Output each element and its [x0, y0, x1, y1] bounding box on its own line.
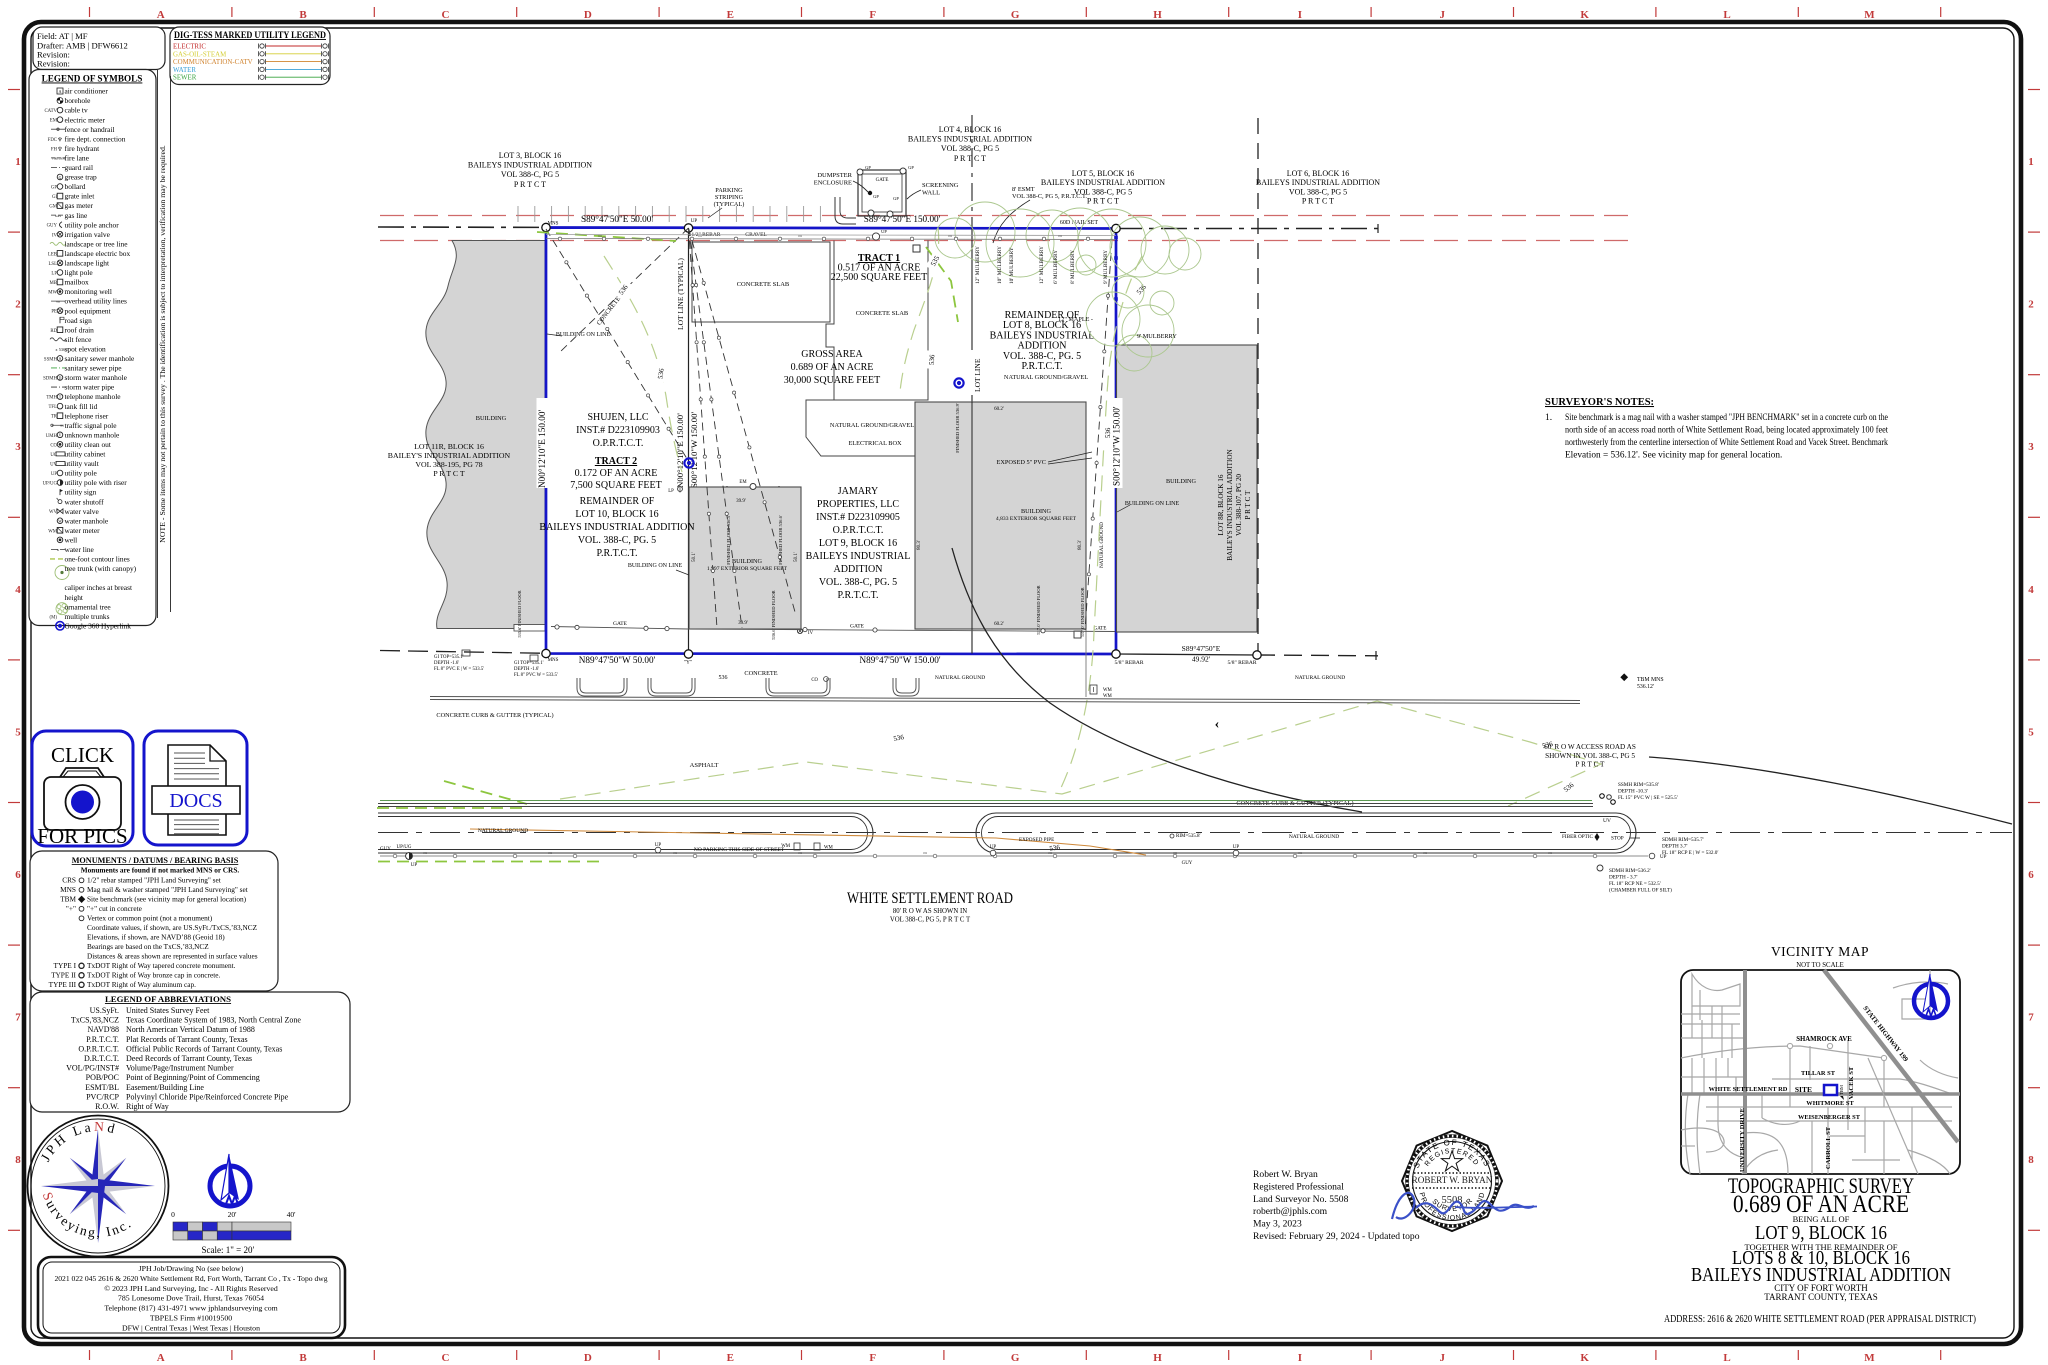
svg-text:TBM: TBM: [1839, 1085, 1844, 1095]
svg-text:GP: GP: [908, 165, 914, 170]
svg-text:2021 022 045 2616 & 2620 White: 2021 022 045 2616 & 2620 White Settlemen…: [54, 1274, 327, 1283]
svg-text:ou: ou: [698, 234, 702, 238]
svg-text:Revised: February 29, 2024 - U: Revised: February 29, 2024 - Updated top…: [1253, 1231, 1420, 1242]
svg-text:sanitary sewer manhole: sanitary sewer manhole: [65, 354, 135, 363]
svg-text:utility pole with riser: utility pole with riser: [65, 478, 128, 487]
svg-text:80' R O W AS SHOWN IN: 80' R O W AS SHOWN IN: [893, 908, 967, 915]
svg-text:gas meter: gas meter: [65, 201, 94, 210]
svg-text:4: 4: [2028, 584, 2034, 596]
svg-text:ou: ou: [798, 234, 802, 238]
svg-text:J: J: [1440, 1352, 1446, 1364]
svg-text:VOL/PG/INST#: VOL/PG/INST#: [66, 1064, 119, 1073]
svg-text:LOT 3, BLOCK 16: LOT 3, BLOCK 16: [499, 151, 562, 160]
svg-text:CONCRETE SLAB: CONCRETE SLAB: [856, 310, 909, 317]
svg-text:IV: IV: [52, 233, 58, 238]
svg-text:TBM: TBM: [60, 895, 76, 904]
svg-text:P.R.T.C.T.: P.R.T.C.T.: [1021, 361, 1062, 372]
svg-text:DEPTH -1.6': DEPTH -1.6': [434, 661, 459, 666]
svg-text:VOL 388-C, PG 5: VOL 388-C, PG 5: [941, 144, 999, 153]
svg-text:UP: UP: [691, 219, 698, 224]
svg-text:F: F: [869, 9, 876, 21]
svg-text:UP: UP: [51, 472, 57, 477]
svg-text:water shutoff: water shutoff: [65, 497, 105, 506]
svg-text:+: +: [56, 497, 58, 501]
svg-text:GAS: GAS: [55, 214, 61, 218]
svg-text:GUY: GUY: [380, 847, 391, 852]
svg-text:LOT LINE: LOT LINE: [973, 358, 982, 392]
svg-text:N89°47'50"W 150.00': N89°47'50"W 150.00': [859, 655, 940, 665]
svg-text:SDMH RIM=535.7': SDMH RIM=535.7': [1662, 837, 1704, 843]
svg-text:CARROLL ST: CARROLL ST: [1825, 1126, 1832, 1169]
svg-text:ou: ou: [923, 851, 927, 855]
svg-text:49.92': 49.92': [1192, 655, 1211, 664]
svg-text:B: B: [299, 9, 307, 21]
svg-text:storm water manhole: storm water manhole: [65, 373, 128, 382]
svg-text:L: L: [1723, 9, 1730, 21]
svg-text:Mag nail & washer stamped "JPH: Mag nail & washer stamped "JPH Land Surv…: [87, 885, 248, 894]
svg-text:FL 15" PVC W | SE = 525.5′: FL 15" PVC W | SE = 525.5′: [1618, 795, 1678, 801]
svg-text:"+" cut in concrete: "+" cut in concrete: [87, 904, 142, 913]
svg-text:9' MULBERRY: 9' MULBERRY: [1137, 333, 1177, 340]
svg-text:DUMPSTER: DUMPSTER: [817, 172, 852, 179]
svg-text:FIBER OPTIC: FIBER OPTIC: [1562, 834, 1594, 840]
svg-text:12" MULBERRY: 12" MULBERRY: [1039, 246, 1045, 284]
svg-text:10' MULBERRY: 10' MULBERRY: [1009, 247, 1015, 284]
svg-text:utility vault: utility vault: [65, 459, 100, 468]
svg-text:80.3': 80.3': [1078, 540, 1083, 550]
svg-text:1/2" rebar stamped "JPH Land S: 1/2" rebar stamped "JPH Land Surveying" …: [87, 876, 221, 885]
svg-text:LOT 9, BLOCK 16: LOT 9, BLOCK 16: [1755, 1223, 1887, 1244]
svg-text:L: L: [1723, 1352, 1730, 1364]
svg-text:GM: GM: [49, 205, 57, 210]
svg-text:PROPERTIES, LLC: PROPERTIES, LLC: [817, 499, 900, 510]
svg-text:utility pole: utility pole: [65, 469, 98, 478]
svg-text:G: G: [59, 176, 62, 180]
svg-text:UP: UP: [881, 229, 887, 234]
svg-text:BAILEYS INDUSTRIAL ADDITION: BAILEYS INDUSTRIAL ADDITION: [1041, 178, 1165, 187]
svg-text:silt fence: silt fence: [65, 335, 93, 344]
svg-text:BAILEYS INDUSTRIAL ADDITION: BAILEYS INDUSTRIAL ADDITION: [539, 522, 694, 533]
svg-text:utility pole anchor: utility pole anchor: [65, 220, 120, 229]
svg-text:BUILDING ON LINE: BUILDING ON LINE: [556, 332, 611, 338]
svg-text:ELECTRIC: ELECTRIC: [173, 44, 206, 51]
svg-text:P.R.T.C.T.: P.R.T.C.T.: [596, 548, 637, 559]
svg-text:VOL. 388-C, PG. 5: VOL. 388-C, PG. 5: [578, 535, 656, 546]
svg-text:NATURAL GROUND: NATURAL GROUND: [478, 828, 528, 834]
svg-text:9' MULBERRY: 9' MULBERRY: [1103, 250, 1109, 284]
svg-text:WM: WM: [48, 529, 58, 534]
svg-text:J: J: [1440, 9, 1446, 21]
svg-text:8: 8: [2028, 1154, 2034, 1166]
svg-text:H: H: [1153, 1352, 1162, 1364]
svg-text:REMAINDER OF: REMAINDER OF: [580, 496, 655, 507]
svg-text:3: 3: [2028, 441, 2034, 453]
svg-text:GI TOP=535.1': GI TOP=535.1': [514, 661, 544, 666]
svg-text:WV: WV: [49, 510, 58, 515]
svg-text:telephone riser: telephone riser: [65, 411, 109, 420]
svg-text:1,997 EXTERIOR SQUARE FEET: 1,997 EXTERIOR SQUARE FEET: [707, 566, 788, 572]
svg-text:‹: ‹: [1215, 717, 1220, 732]
svg-text:G: G: [1011, 1352, 1020, 1364]
svg-text:LOT 9, BLOCK 16: LOT 9, BLOCK 16: [819, 538, 897, 549]
svg-text:D: D: [584, 1352, 592, 1364]
svg-text:536: 536: [719, 675, 728, 681]
svg-text:GP: GP: [865, 165, 871, 170]
svg-text:PARKING: PARKING: [715, 187, 743, 194]
svg-text:22,500 SQUARE FEET: 22,500 SQUARE FEET: [831, 272, 927, 283]
svg-text:VOL 388-C, PG 5: VOL 388-C, PG 5: [1289, 187, 1347, 196]
svg-text:MW: MW: [48, 291, 57, 296]
svg-text:UP: UP: [411, 863, 418, 868]
svg-text:FL 18" RCP E | W = 532.0′: FL 18" RCP E | W = 532.0′: [1662, 850, 1719, 856]
svg-text:Registered Professional: Registered Professional: [1253, 1181, 1344, 1192]
svg-text:TRACT 2: TRACT 2: [595, 456, 637, 467]
svg-text:M: M: [1864, 9, 1875, 21]
svg-text:sanitary sewer pipe: sanitary sewer pipe: [65, 364, 123, 373]
svg-text:LSL: LSL: [48, 262, 57, 267]
svg-text:GI TOP=535.1': GI TOP=535.1': [434, 655, 464, 660]
svg-text:VOL 388-C, PG 5, P.R.T.C.T.: VOL 388-C, PG 5, P.R.T.C.T.: [1012, 193, 1087, 200]
svg-text:SITE: SITE: [1795, 1085, 1812, 1094]
svg-text:MB: MB: [50, 281, 57, 286]
svg-text:ou: ou: [1058, 234, 1062, 238]
svg-text:LP: LP: [51, 271, 57, 276]
svg-text:BUILDING ON LINE: BUILDING ON LINE: [628, 563, 683, 569]
svg-text:SCREENING: SCREENING: [922, 182, 959, 189]
svg-text:N00°12'10"E 150.00': N00°12'10"E 150.00': [537, 410, 547, 488]
svg-text:GI: GI: [52, 195, 57, 200]
svg-text:NATURAL GROUND: NATURAL GROUND: [935, 675, 985, 681]
svg-text:VICINITY MAP: VICINITY MAP: [1771, 944, 1869, 959]
svg-text:FL 8" PVC W = 533.5': FL 8" PVC W = 533.5': [514, 673, 558, 678]
svg-text:S00°12'10"W 150.00': S00°12'10"W 150.00': [689, 411, 699, 488]
svg-text:electric meter: electric meter: [65, 115, 106, 124]
svg-text:WHITE SETTLEMENT RD: WHITE SETTLEMENT RD: [1709, 1086, 1788, 1093]
svg-text:S00°12'10"W 150.00': S00°12'10"W 150.00': [1112, 406, 1122, 486]
svg-text:caliper inches at breast: caliper inches at breast: [65, 583, 133, 592]
svg-text:LOT 11R, BLOCK 16: LOT 11R, BLOCK 16: [414, 442, 484, 451]
svg-text:BUILDING: BUILDING: [732, 558, 762, 565]
svg-text:5/8" REBAR: 5/8" REBAR: [1228, 660, 1257, 666]
svg-text:8' MULBERRY: 8' MULBERRY: [1070, 250, 1076, 284]
svg-text:S89°47'50"E: S89°47'50"E: [1182, 644, 1221, 653]
svg-text:FL 8" PVC E | W = 533.5': FL 8" PVC E | W = 533.5': [434, 667, 484, 672]
svg-text:H: H: [1153, 9, 1162, 21]
svg-text:ADDITION: ADDITION: [834, 564, 883, 575]
svg-text:P.R.T.C.T.: P.R.T.C.T.: [837, 590, 878, 601]
svg-text:O.P.R.T.C.T.: O.P.R.T.C.T.: [78, 1044, 119, 1053]
svg-text:guard rail: guard rail: [65, 163, 94, 172]
svg-text:cable tv: cable tv: [65, 106, 88, 115]
svg-text:S: S: [59, 357, 61, 361]
svg-text:ou: ou: [1048, 851, 1052, 855]
svg-text:spot elevation: spot elevation: [65, 344, 107, 353]
svg-text:FINISHED FLOOR 536.9': FINISHED FLOOR 536.9': [955, 403, 960, 453]
svg-text:BUILDING: BUILDING: [1166, 478, 1196, 485]
svg-text:39.9': 39.9': [736, 499, 746, 504]
svg-text:0.689 OF AN ACRE: 0.689 OF AN ACRE: [791, 362, 874, 373]
svg-text:WHITE SETTLEMENT ROAD: WHITE SETTLEMENT ROAD: [847, 890, 1013, 907]
svg-text:ou: ou: [798, 851, 802, 855]
svg-text:CO: CO: [811, 678, 818, 683]
svg-text:I: I: [1298, 9, 1302, 21]
svg-text:12" MAPLE -: 12" MAPLE -: [1058, 316, 1093, 323]
svg-text:BAILEYS INDUSTRIAL ADDITION: BAILEYS INDUSTRIAL ADDITION: [1226, 448, 1234, 560]
svg-text:8: 8: [15, 1154, 21, 1166]
svg-text:INST.# D223109903: INST.# D223109903: [576, 425, 660, 436]
svg-text:ou: ou: [56, 300, 60, 304]
svg-text:W: W: [58, 520, 62, 524]
svg-text:CATV: CATV: [44, 109, 57, 114]
svg-text:3: 3: [15, 441, 21, 453]
svg-text:Telephone (817) 431-4971 www j: Telephone (817) 431-4971 www jphlandsurv…: [104, 1304, 277, 1313]
svg-text:WM: WM: [781, 844, 791, 849]
svg-text:6: 6: [2028, 869, 2034, 881]
svg-text:VOL. 388-C, PG. 5: VOL. 388-C, PG. 5: [819, 577, 897, 588]
svg-text:7: 7: [15, 1012, 21, 1024]
svg-text:CONCRETE CURB & GUTTER (TYPICA: CONCRETE CURB & GUTTER (TYPICAL): [436, 712, 553, 719]
svg-text:WATER: WATER: [173, 67, 196, 74]
svg-text:air conditioner: air conditioner: [65, 87, 109, 96]
svg-text:Polyvinyl Chloride Pipe/Reinfo: Polyvinyl Chloride Pipe/Reinforced Concr…: [126, 1092, 289, 1101]
svg-text:LOT 8R, BLOCK 16: LOT 8R, BLOCK 16: [1217, 474, 1225, 535]
svg-text:7,500 SQUARE FEET: 7,500 SQUARE FEET: [570, 480, 661, 491]
svg-text:pool equipment: pool equipment: [65, 306, 112, 315]
svg-text:P R T C T: P R T C T: [1302, 197, 1334, 206]
svg-text:ou: ou: [673, 851, 677, 855]
svg-text:water meter: water meter: [65, 526, 101, 535]
svg-text:(M): (M): [50, 615, 58, 620]
svg-text:Google 360 Hyperlink: Google 360 Hyperlink: [65, 621, 132, 630]
svg-text:Elevation = 536.12'. See vicin: Elevation = 536.12'. See vicinity map fo…: [1565, 450, 1782, 461]
svg-text:A: A: [157, 9, 165, 21]
svg-text:CONCRETE SLAB: CONCRETE SLAB: [737, 281, 790, 288]
svg-text:Distances & areas shown are re: Distances & areas shown are represented …: [87, 952, 258, 961]
svg-text:CLICK: CLICK: [51, 743, 114, 767]
svg-text:GUY: GUY: [1182, 861, 1193, 866]
svg-text:ou: ou: [1298, 851, 1302, 855]
svg-text:fire lane: fire lane: [65, 153, 90, 162]
svg-text:roof drain: roof drain: [65, 325, 95, 334]
svg-text:DFW | Central Texas | West Tex: DFW | Central Texas | West Texas | Houst…: [122, 1323, 260, 1332]
svg-text:8' ESMT: 8' ESMT: [1012, 186, 1035, 193]
svg-text:VOL 388-107, PG 20: VOL 388-107, PG 20: [1235, 474, 1243, 536]
svg-text:© 2023 JPH Land Surveying, Inc: © 2023 JPH Land Surveying, Inc - All Rig…: [104, 1284, 278, 1293]
svg-text:FDC: FDC: [48, 138, 57, 143]
svg-text:ou: ou: [1548, 851, 1552, 855]
svg-text:P.R.T.C.T.: P.R.T.C.T.: [86, 1035, 119, 1044]
svg-text:C: C: [442, 1352, 450, 1364]
svg-text:1: 1: [2028, 156, 2034, 168]
svg-text:FOR PICS: FOR PICS: [37, 824, 127, 848]
svg-text:BAILEYS INDUSTRIAL ADDITION: BAILEYS INDUSTRIAL ADDITION: [1256, 178, 1380, 187]
svg-text:LEB: LEB: [48, 252, 57, 257]
svg-text:NATURAL GROUND: NATURAL GROUND: [1289, 834, 1339, 840]
svg-text:(CHAMBER FULL OF SILT): (CHAMBER FULL OF SILT): [1609, 887, 1672, 894]
svg-text:borehole: borehole: [65, 96, 92, 105]
svg-text:A: A: [157, 1352, 165, 1364]
svg-text:STOP: STOP: [1611, 836, 1624, 842]
svg-text:FL 18" RCP NE = 532.5′: FL 18" RCP NE = 532.5′: [1609, 881, 1661, 887]
svg-text:20': 20': [228, 1210, 238, 1219]
svg-text:♆: ♆: [57, 136, 62, 143]
svg-text:SHAMROCK AVE: SHAMROCK AVE: [1796, 1036, 1852, 1043]
svg-text:O.P.R.T.C.T.: O.P.R.T.C.T.: [593, 438, 644, 449]
svg-text:May 3, 2023: May 3, 2023: [1253, 1219, 1302, 1230]
svg-text:SSMH: SSMH: [44, 357, 58, 362]
svg-text:CONCRETE: CONCRETE: [744, 670, 777, 677]
svg-text:ELECTRICAL BOX: ELECTRICAL BOX: [848, 440, 902, 447]
svg-text:ou: ou: [548, 851, 552, 855]
svg-text:TYPE III: TYPE III: [49, 980, 77, 989]
svg-text:SDMH: SDMH: [43, 377, 57, 382]
svg-text:ASPHALT: ASPHALT: [690, 762, 719, 769]
svg-text:tree trunk (with canopy): tree trunk (with canopy): [65, 564, 137, 573]
svg-text:Site benchmark is a mag nail w: Site benchmark is a mag nail with a wash…: [1565, 413, 1888, 423]
svg-text:39.9': 39.9': [738, 621, 748, 626]
svg-text:MNS: MNS: [548, 222, 559, 227]
svg-text:LP: LP: [668, 489, 674, 494]
svg-text:well: well: [65, 535, 78, 544]
svg-text:Official Public Records of Tar: Official Public Records of Tarrant Count…: [126, 1044, 282, 1053]
svg-text:Plat Records of Tarrant County: Plat Records of Tarrant County, Texas: [126, 1035, 248, 1044]
svg-text:water line: water line: [65, 545, 95, 554]
svg-text:VOL 388-195, PG 78: VOL 388-195, PG 78: [415, 460, 482, 469]
svg-text:V: V: [59, 434, 62, 438]
svg-text:40': 40': [287, 1210, 297, 1219]
svg-text:NATURAL GROUND/GRAVEL: NATURAL GROUND/GRAVEL: [830, 422, 914, 429]
svg-text:SHUJEN, LLC: SHUJEN, LLC: [587, 412, 648, 423]
svg-text:B: B: [299, 1352, 307, 1364]
svg-text:telephone manhole: telephone manhole: [65, 392, 122, 401]
svg-text:Site benchmark (see vicinity m: Site benchmark (see vicinity map for gen…: [87, 895, 247, 904]
svg-text:light pole: light pole: [65, 268, 94, 277]
svg-text:GAS-OIL-STEAM: GAS-OIL-STEAM: [173, 51, 226, 58]
svg-text:UV: UV: [1603, 818, 1611, 824]
svg-text:DEPTH 3.7': DEPTH 3.7': [1662, 844, 1687, 850]
svg-text:6' MULBERRY: 6' MULBERRY: [1053, 250, 1059, 284]
svg-text:VACEK ST: VACEK ST: [1848, 1066, 1855, 1099]
svg-text:D: D: [584, 9, 592, 21]
svg-text:VOL 388-C, PG 5: VOL 388-C, PG 5: [501, 170, 559, 179]
svg-text:DOCS: DOCS: [169, 790, 222, 812]
svg-text:SEWER: SEWER: [173, 75, 197, 82]
svg-text:LOT 6, BLOCK 16: LOT 6, BLOCK 16: [1287, 169, 1350, 178]
svg-text:C: C: [442, 9, 450, 21]
svg-text:BUILDING: BUILDING: [1021, 508, 1051, 515]
svg-text:multiple trunks: multiple trunks: [65, 612, 110, 621]
svg-text:GATE: GATE: [850, 624, 865, 630]
svg-text:SDMH RIM=536.2': SDMH RIM=536.2': [1609, 868, 1651, 874]
svg-text:INST.# D223109905: INST.# D223109905: [816, 512, 900, 523]
svg-text:CO: CO: [50, 443, 57, 448]
svg-text:PVC/RCP: PVC/RCP: [86, 1092, 119, 1101]
svg-text:JAMARY: JAMARY: [838, 486, 879, 497]
svg-text:GROSS AREA: GROSS AREA: [801, 349, 863, 360]
svg-text:irrigation valve: irrigation valve: [65, 230, 111, 239]
svg-text:R.O.W.: R.O.W.: [95, 1102, 119, 1111]
svg-text:ornamental tree: ornamental tree: [65, 602, 112, 611]
svg-text:TYPE II: TYPE II: [51, 971, 76, 980]
svg-text:water manhole: water manhole: [65, 516, 109, 525]
svg-text:D: D: [59, 376, 62, 380]
svg-text:5: 5: [2028, 726, 2034, 738]
svg-text:80.3': 80.3': [917, 540, 922, 550]
svg-text:785 Lonesome Dove Trail, Hurst: 785 Lonesome Dove Trail, Hurst, Texas 76…: [118, 1294, 264, 1303]
svg-text:NATURAL GROUND/GRAVEL: NATURAL GROUND/GRAVEL: [1004, 374, 1088, 381]
svg-text:UP/UG: UP/UG: [43, 482, 58, 487]
svg-text:537.0' FINISHED FLOOR: 537.0' FINISHED FLOOR: [1036, 584, 1041, 634]
svg-text:7: 7: [2028, 1012, 2034, 1024]
svg-text:1.: 1.: [1545, 413, 1552, 423]
svg-text:landscape light: landscape light: [65, 259, 110, 268]
svg-text:D.R.T.C.T.: D.R.T.C.T.: [84, 1054, 119, 1063]
svg-text:RIM=535.8′: RIM=535.8′: [1176, 834, 1201, 839]
svg-text:F: F: [869, 1352, 876, 1364]
svg-text:LOT 5, BLOCK 16: LOT 5, BLOCK 16: [1072, 169, 1135, 178]
svg-text:M: M: [1864, 1352, 1875, 1364]
svg-text:GP: GP: [51, 186, 57, 191]
svg-text:grate inlet: grate inlet: [65, 192, 96, 201]
svg-text:COMMUNICATION-CATV: COMMUNICATION-CATV: [173, 59, 253, 66]
svg-text:WEISENBERGER ST: WEISENBERGER ST: [1798, 1114, 1861, 1121]
svg-text:LOT LINE (TYPICAL): LOT LINE (TYPICAL): [676, 258, 685, 330]
svg-text:I: I: [1298, 1352, 1302, 1364]
svg-text:P R T C T: P R T C T: [954, 154, 986, 163]
svg-text:TMH: TMH: [46, 396, 57, 401]
svg-text:water valve: water valve: [65, 507, 100, 516]
svg-text:storm water pipe: storm water pipe: [65, 383, 115, 392]
svg-text:4: 4: [15, 584, 21, 596]
svg-text:Texas Coordinate System of 198: Texas Coordinate System of 1983, North C…: [126, 1016, 301, 1025]
svg-text:TILLAR ST: TILLAR ST: [1801, 1070, 1836, 1077]
svg-text:IV: IV: [808, 631, 814, 636]
svg-text:AA: AA: [60, 424, 64, 427]
svg-text:WM: WM: [1103, 688, 1113, 693]
svg-text:POB/POC: POB/POC: [86, 1073, 119, 1082]
svg-text:height: height: [65, 593, 84, 602]
svg-text:JPH Job/Drawing No (see below: JPH Job/Drawing No (see below): [139, 1264, 244, 1273]
svg-text:♆: ♆: [57, 146, 62, 153]
svg-text:LOT 10, BLOCK 16: LOT 10, BLOCK 16: [575, 509, 658, 520]
svg-text:DIG-TESS MARKED UTILITY LEGEND: DIG-TESS MARKED UTILITY LEGEND: [174, 31, 326, 41]
svg-text:robertb@jphls.com: robertb@jphls.com: [1253, 1206, 1328, 1217]
svg-text:fire hydrant: fire hydrant: [65, 144, 101, 153]
svg-text:DEPTH -10.3': DEPTH -10.3': [1618, 789, 1648, 795]
svg-text:50.1': 50.1': [692, 552, 697, 562]
svg-text:60.2': 60.2': [994, 407, 1004, 412]
svg-text:ESMT/BL: ESMT/BL: [85, 1083, 119, 1092]
svg-text:Easement/Building Line: Easement/Building Line: [126, 1083, 204, 1092]
svg-text:TBM MNS: TBM MNS: [1637, 677, 1664, 683]
svg-text:K: K: [1580, 9, 1589, 21]
svg-text:"Y": "Y": [684, 660, 692, 666]
svg-text:536.12': 536.12': [1637, 684, 1654, 690]
svg-text:LOT 4, BLOCK 16: LOT 4, BLOCK 16: [939, 125, 1002, 134]
svg-text:NATURAL GROUND: NATURAL GROUND: [1295, 675, 1345, 681]
svg-text:landscape electric box: landscape electric box: [65, 249, 131, 258]
svg-text:traffic signal pole: traffic signal pole: [65, 421, 118, 430]
svg-text:US.SyFt.: US.SyFt.: [90, 1006, 119, 1015]
svg-text:United States Survey Feet: United States Survey Feet: [126, 1006, 210, 1015]
svg-text:EM: EM: [50, 119, 58, 124]
svg-text:DEPTH - 3.7': DEPTH - 3.7': [1609, 875, 1638, 881]
svg-text:S89°47'50"E 50.00': S89°47'50"E 50.00': [581, 214, 653, 224]
svg-text:2: 2: [15, 299, 21, 311]
svg-text:TxDOT Right of Way tapered con: TxDOT Right of Way tapered concrete monu…: [87, 961, 236, 970]
svg-text:ROBERT W. BRYAN: ROBERT W. BRYAN: [1412, 1175, 1493, 1185]
svg-text:road sign: road sign: [65, 316, 93, 325]
